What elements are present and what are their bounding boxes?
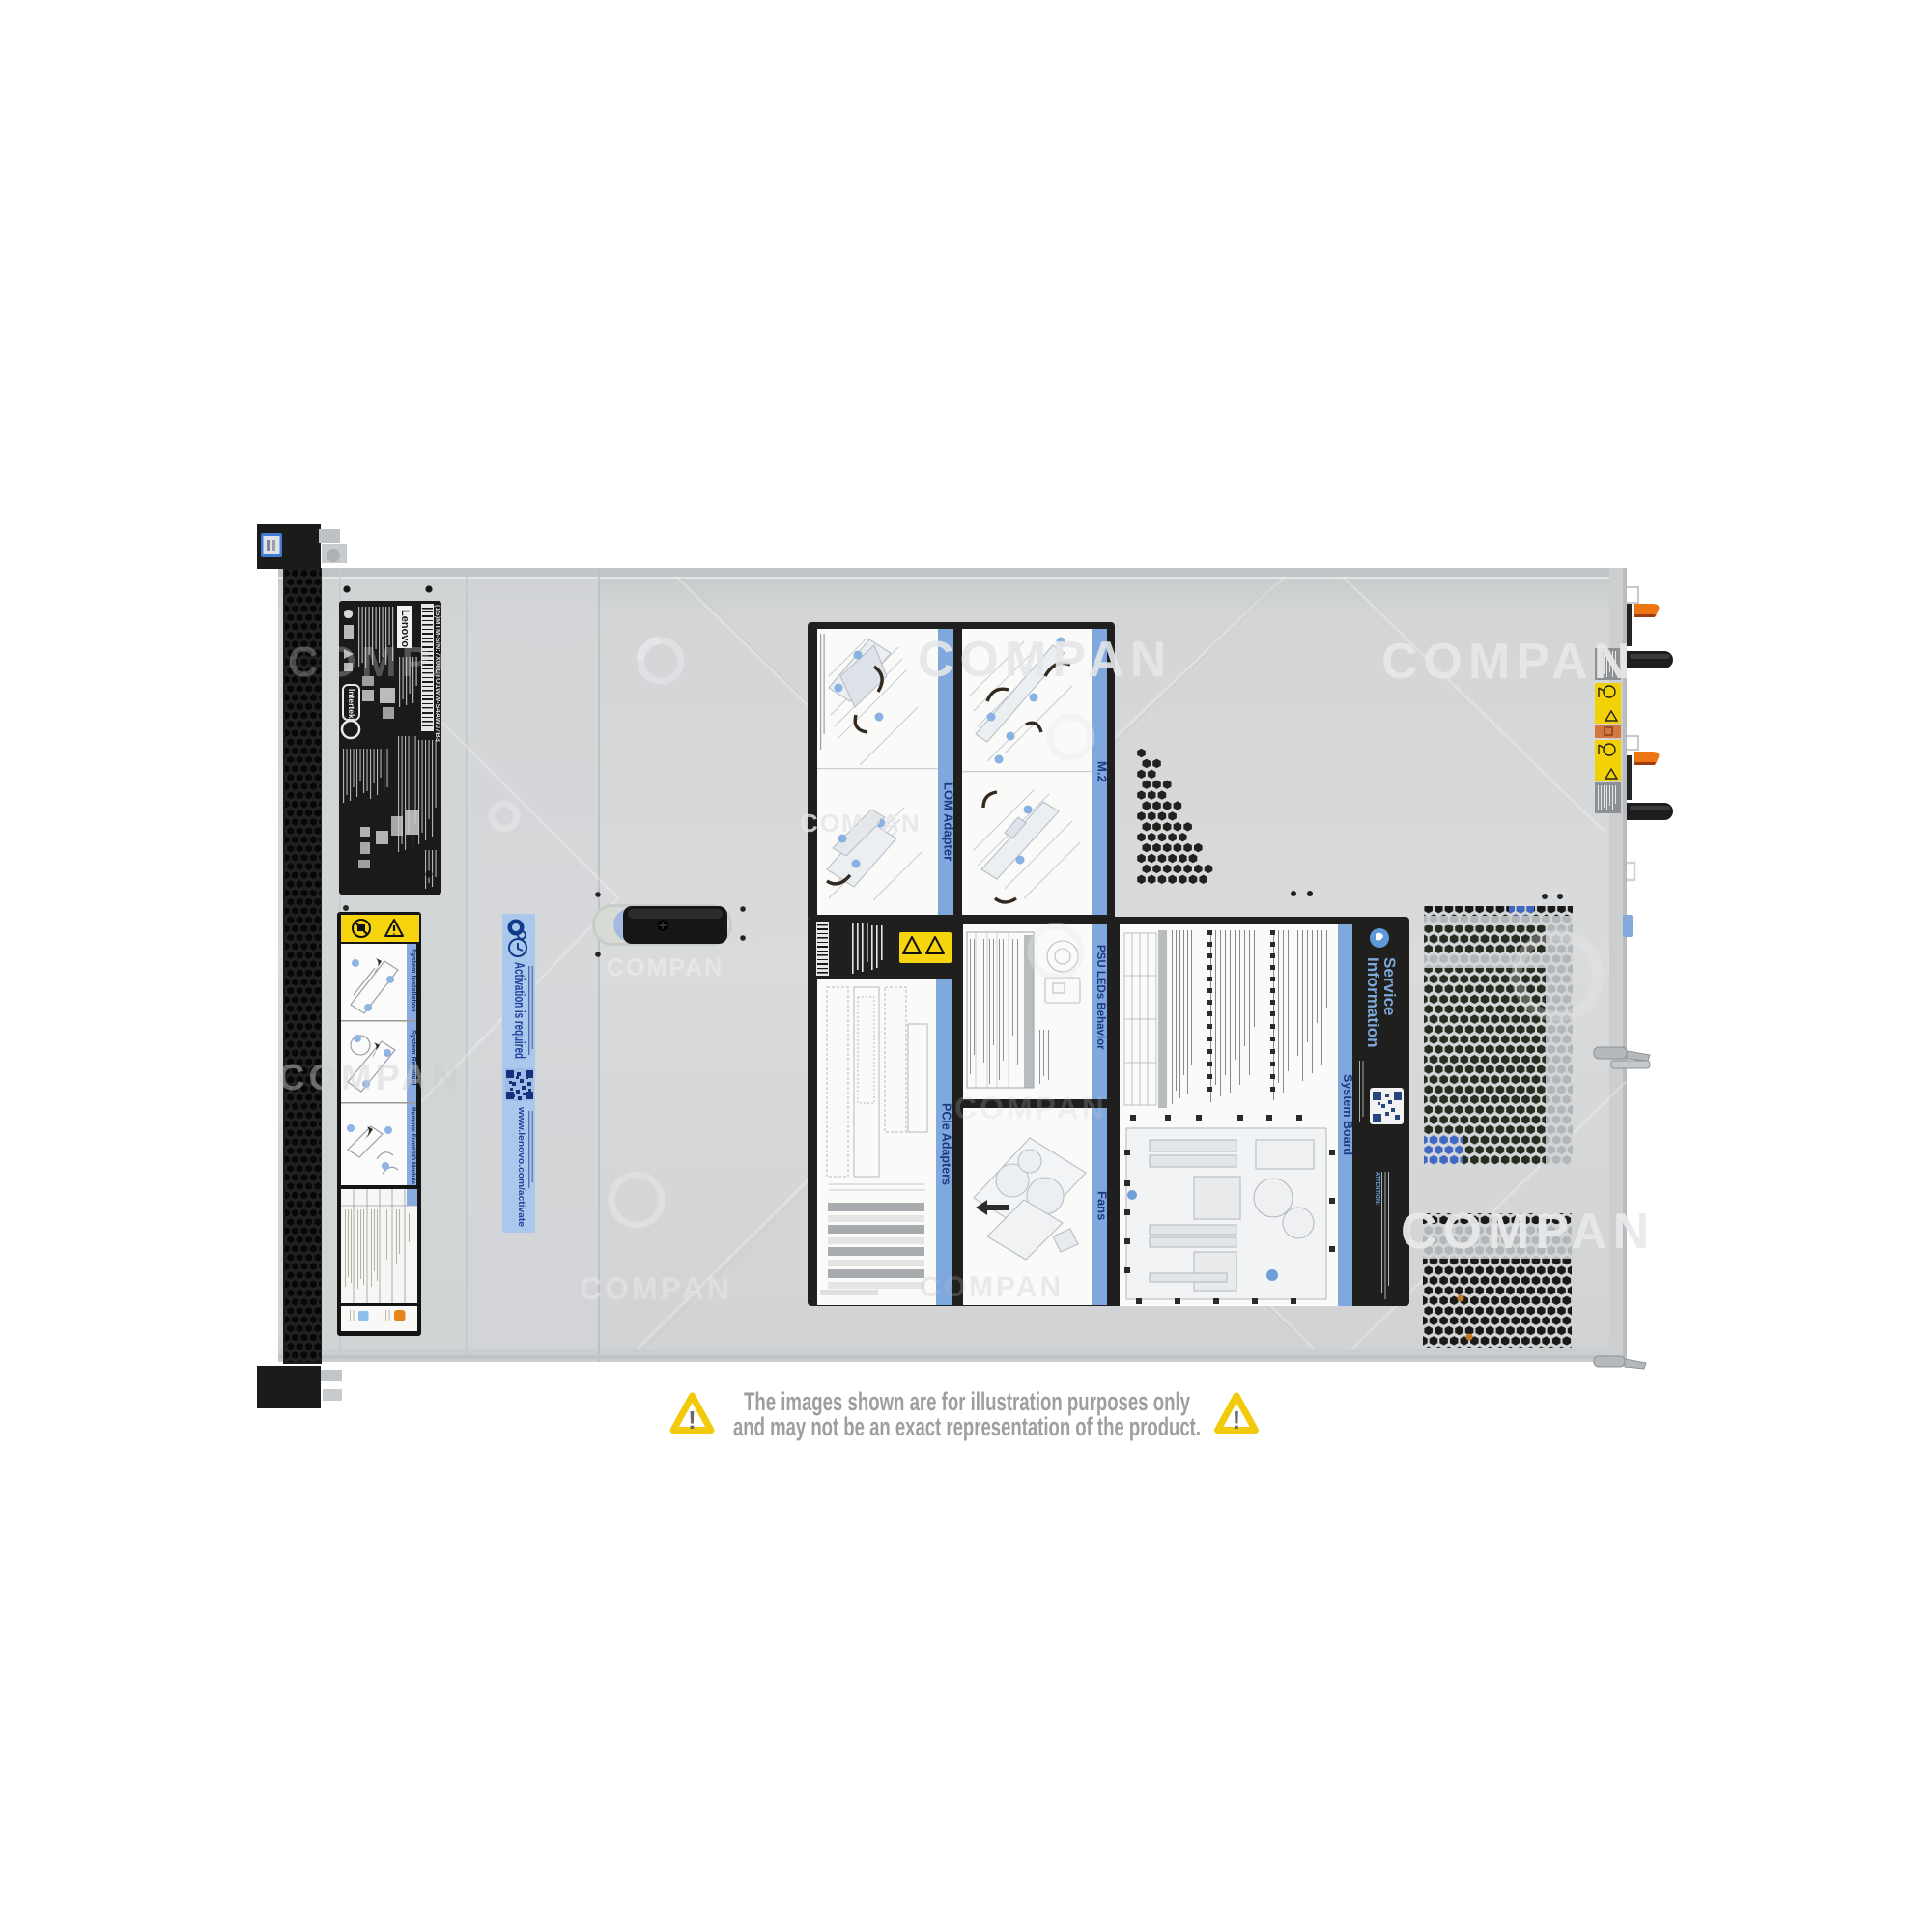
svg-text:COMPAN: COMPAN [580, 1271, 732, 1306]
svg-text:System Installation: System Installation [410, 949, 418, 1012]
svg-text:!: ! [688, 1406, 696, 1435]
svg-text:COMPAN: COMPAN [278, 1058, 462, 1098]
svg-text:COMPAN: COMPAN [1401, 1204, 1655, 1260]
svg-text:www.lenovo.com/activate: www.lenovo.com/activate [516, 1106, 526, 1227]
svg-text:COMPAN: COMPAN [918, 632, 1172, 688]
svg-text:Activation is required: Activation is required [511, 962, 526, 1059]
svg-text:COMPAN: COMPAN [1381, 634, 1635, 690]
svg-text:Information: Information [1364, 957, 1382, 1048]
svg-text:LOM Adapter: LOM Adapter [942, 782, 956, 861]
svg-text:COMPAN: COMPAN [607, 954, 724, 981]
svg-text:PCIe Adapters: PCIe Adapters [940, 1103, 953, 1185]
svg-text:PSU LEDs Behavior: PSU LEDs Behavior [1094, 945, 1106, 1050]
svg-text:!: ! [1233, 1406, 1241, 1435]
svg-text:System Board: System Board [1341, 1074, 1354, 1155]
svg-text:ATTENTION:: ATTENTION: [1374, 1172, 1382, 1205]
svg-text:M.2: M.2 [1095, 761, 1110, 782]
svg-text:COMPAN: COMPAN [954, 1091, 1107, 1125]
svg-text:and may not be an exact repres: and may not be an exact representation o… [733, 1412, 1201, 1441]
svg-text:COMPAN: COMPAN [920, 1271, 1064, 1303]
svg-text:Intertek: Intertek [347, 689, 356, 719]
svg-text:COMPAN: COMPAN [288, 639, 502, 686]
svg-text:Remove Front I/O Module: Remove Front I/O Module [410, 1107, 416, 1184]
svg-text:Fans: Fans [1095, 1191, 1110, 1220]
svg-text:COMPAN: COMPAN [800, 809, 922, 838]
